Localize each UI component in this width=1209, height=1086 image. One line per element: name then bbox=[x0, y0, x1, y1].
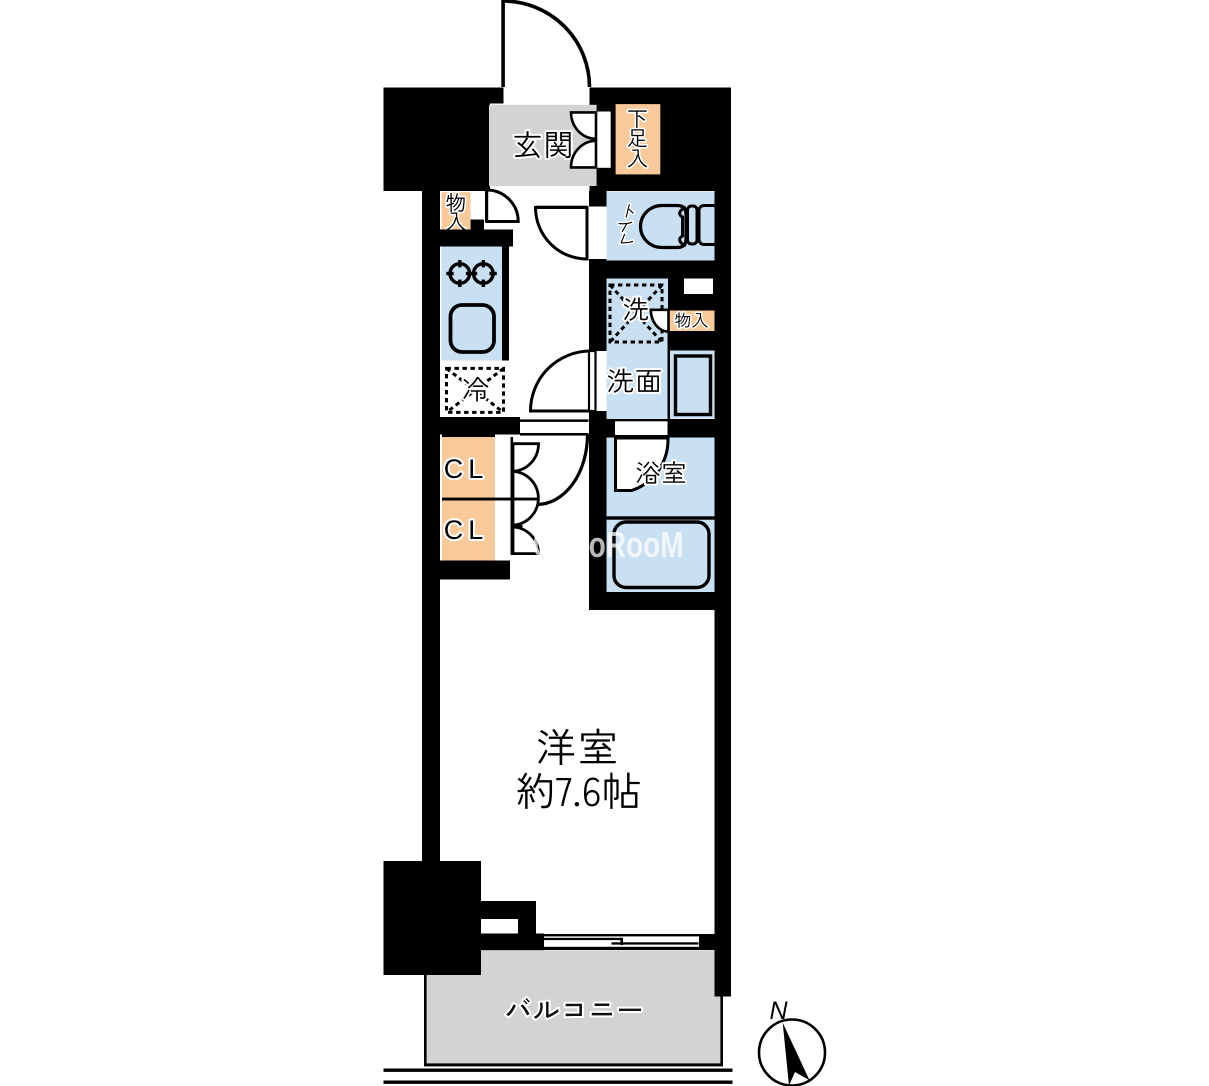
svg-text:CL: CL bbox=[444, 454, 489, 484]
svg-text:CL: CL bbox=[444, 515, 489, 545]
svg-text:N: N bbox=[769, 997, 788, 1025]
svg-text:GoooRooM: GoooRooM bbox=[533, 525, 684, 565]
